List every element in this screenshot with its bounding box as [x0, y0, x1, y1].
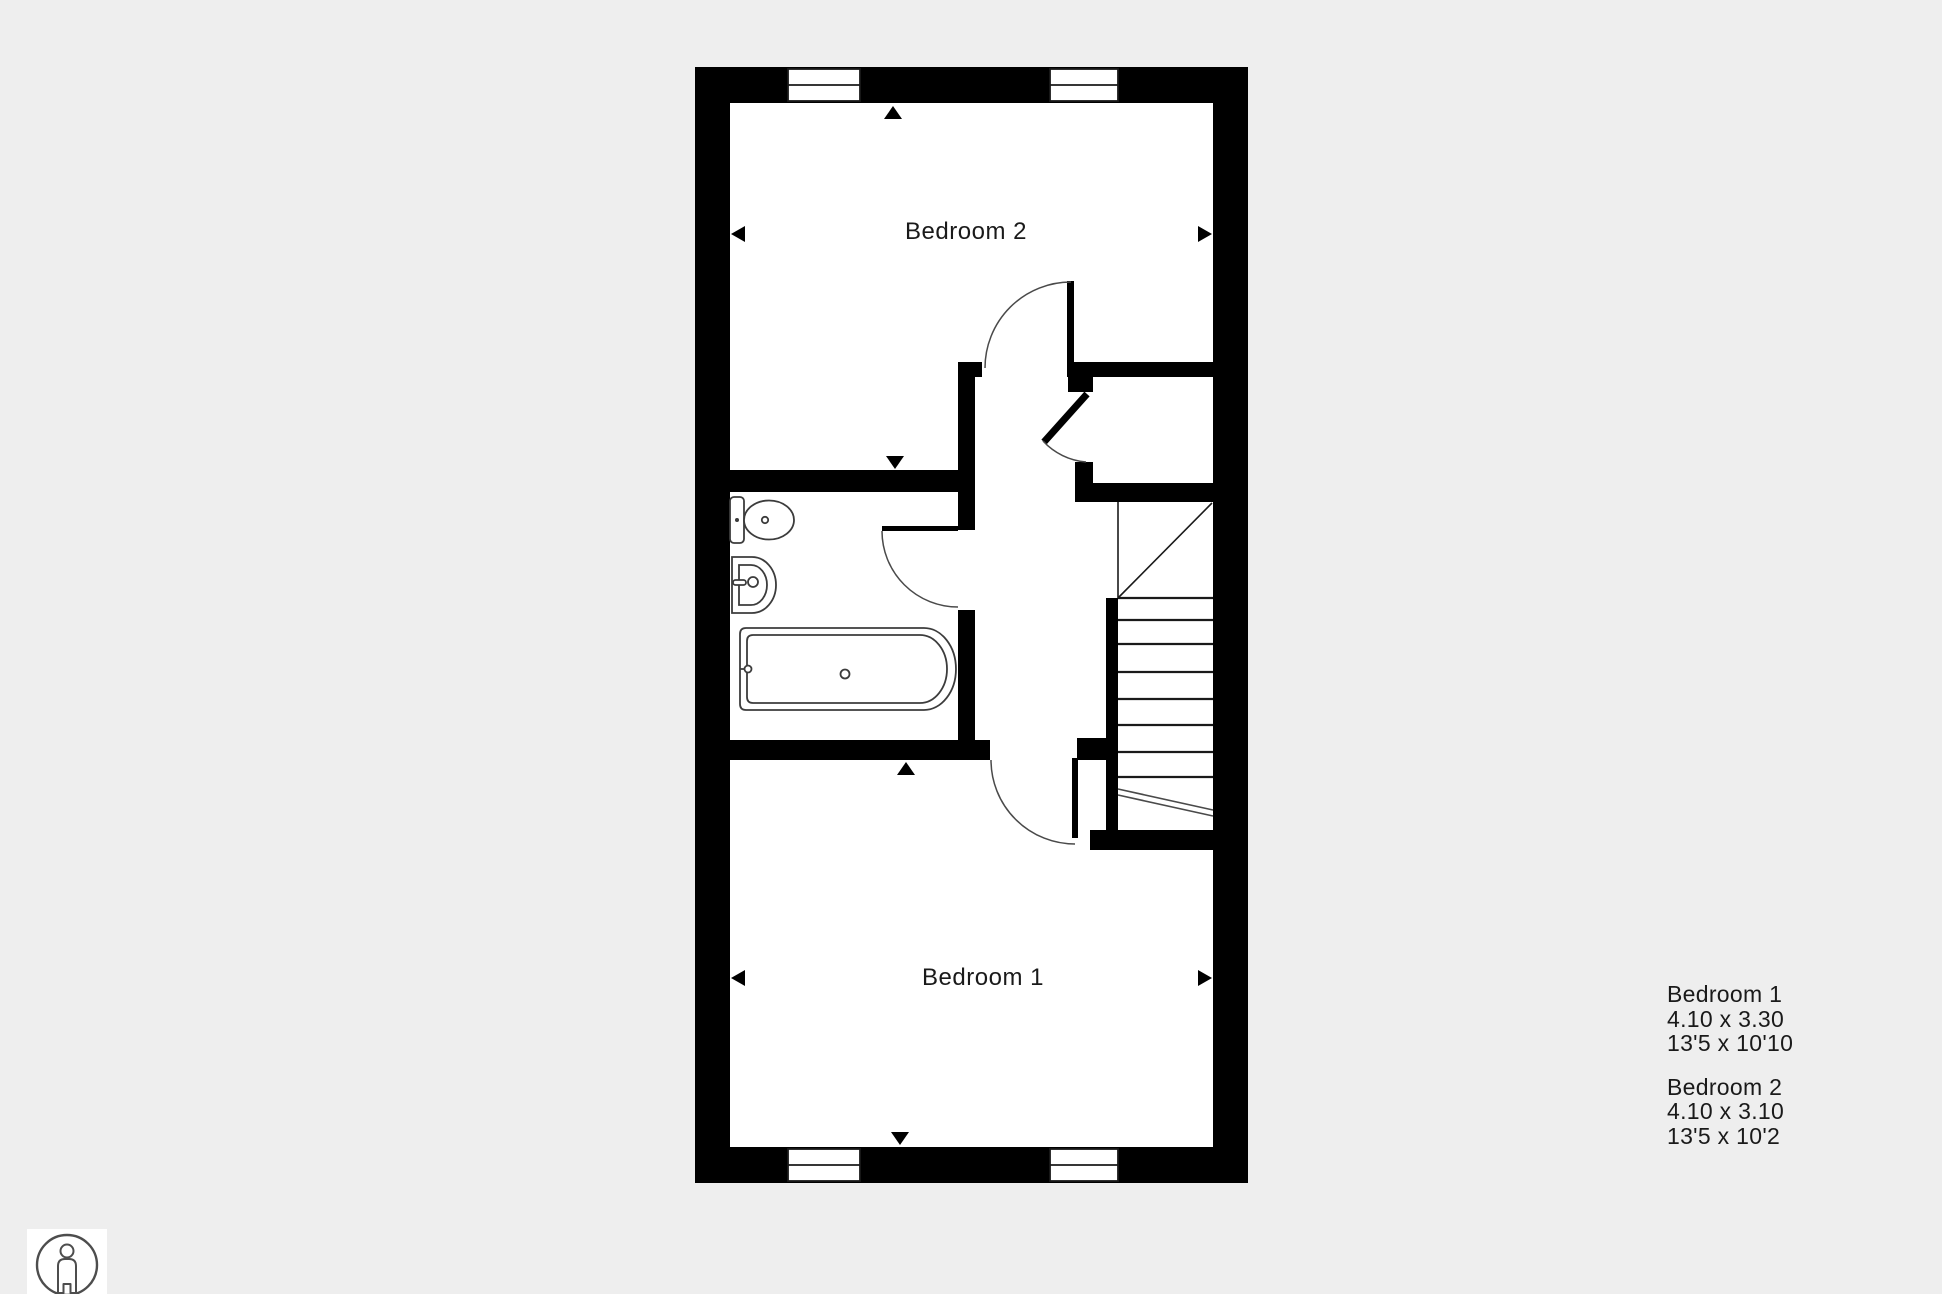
- window-bottom-left: [788, 1149, 860, 1181]
- person-head: [61, 1245, 74, 1258]
- wall-stairwell-south: [1090, 830, 1213, 850]
- floor-plan: Bedroom 2 Bedroom 1: [0, 0, 1942, 1294]
- bedroom2-label: Bedroom 2: [905, 218, 1027, 245]
- wall-closet-jamb-upper: [1068, 362, 1093, 392]
- scale-person-icon: [34, 1232, 100, 1294]
- toilet-flush-dot: [735, 518, 739, 522]
- wall-bathroom-east-upper: [958, 362, 975, 530]
- dimension-entry-bedroom2: Bedroom 2 4.10 x 3.10 13'5 x 10'2: [1667, 1075, 1793, 1149]
- person-body: [58, 1259, 76, 1293]
- bedroom1-door-leaf: [1072, 758, 1078, 838]
- window-top-right: [1050, 69, 1118, 101]
- dimensions-panel: Bedroom 1 4.10 x 3.30 13'5 x 10'10 Bedro…: [1667, 982, 1793, 1167]
- wall-closet-jamb-lower: [1075, 462, 1093, 483]
- wall-bottom: [695, 1147, 1248, 1183]
- bathtub-tap: [745, 666, 752, 673]
- bathroom-door-leaf: [882, 526, 958, 531]
- bedroom2-door-leaf: [1067, 281, 1074, 364]
- floorplan-page: Bedroom 2 Bedroom 1 Bedroom 1 4.10 x 3.3…: [0, 0, 1942, 1294]
- dimension-room-name: Bedroom 2: [1667, 1075, 1793, 1100]
- toilet-drain-dot: [762, 517, 768, 523]
- wall-bathroom-north: [730, 470, 975, 492]
- wall-top: [695, 67, 1248, 103]
- toilet: [730, 497, 794, 543]
- sink-tap-bar: [733, 580, 746, 585]
- wall-right: [1213, 67, 1248, 1183]
- wall-closet-south: [1075, 483, 1213, 502]
- wall-bedroom2-south: [1067, 362, 1248, 377]
- scale-person-card[interactable]: [27, 1229, 107, 1294]
- dimension-entry-bedroom1: Bedroom 1 4.10 x 3.30 13'5 x 10'10: [1667, 982, 1793, 1056]
- window-top-left: [788, 69, 860, 101]
- dimension-metric: 4.10 x 3.30: [1667, 1007, 1793, 1032]
- dimension-metric: 4.10 x 3.10: [1667, 1099, 1793, 1124]
- sink: [732, 557, 776, 613]
- wall-bedroom1-north-stub: [1077, 738, 1106, 760]
- window-bottom-right: [1050, 1149, 1118, 1181]
- dimension-imperial: 13'5 x 10'2: [1667, 1124, 1793, 1149]
- wall-stairwell-west: [1106, 598, 1118, 850]
- bathtub-drain: [841, 670, 850, 679]
- sink-drain: [748, 577, 758, 587]
- dimension-room-name: Bedroom 1: [1667, 982, 1793, 1007]
- wall-left: [695, 67, 730, 1183]
- bathtub: [740, 628, 956, 710]
- dimension-imperial: 13'5 x 10'10: [1667, 1031, 1793, 1056]
- wall-bathroom-east-lower: [958, 610, 975, 742]
- wall-bedroom1-north: [730, 740, 990, 760]
- bedroom1-label: Bedroom 1: [922, 964, 1044, 991]
